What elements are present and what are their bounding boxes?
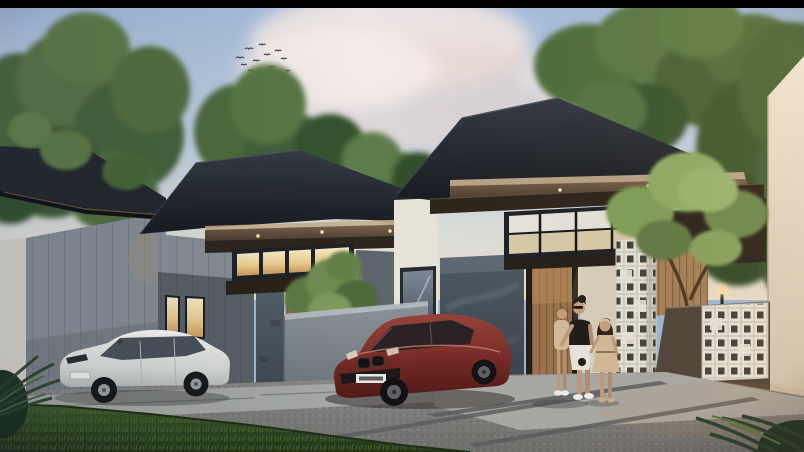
letterbox-bar <box>0 0 804 8</box>
architectural-render <box>0 0 804 452</box>
scene-canvas <box>0 0 804 452</box>
atmosphere <box>0 0 804 452</box>
